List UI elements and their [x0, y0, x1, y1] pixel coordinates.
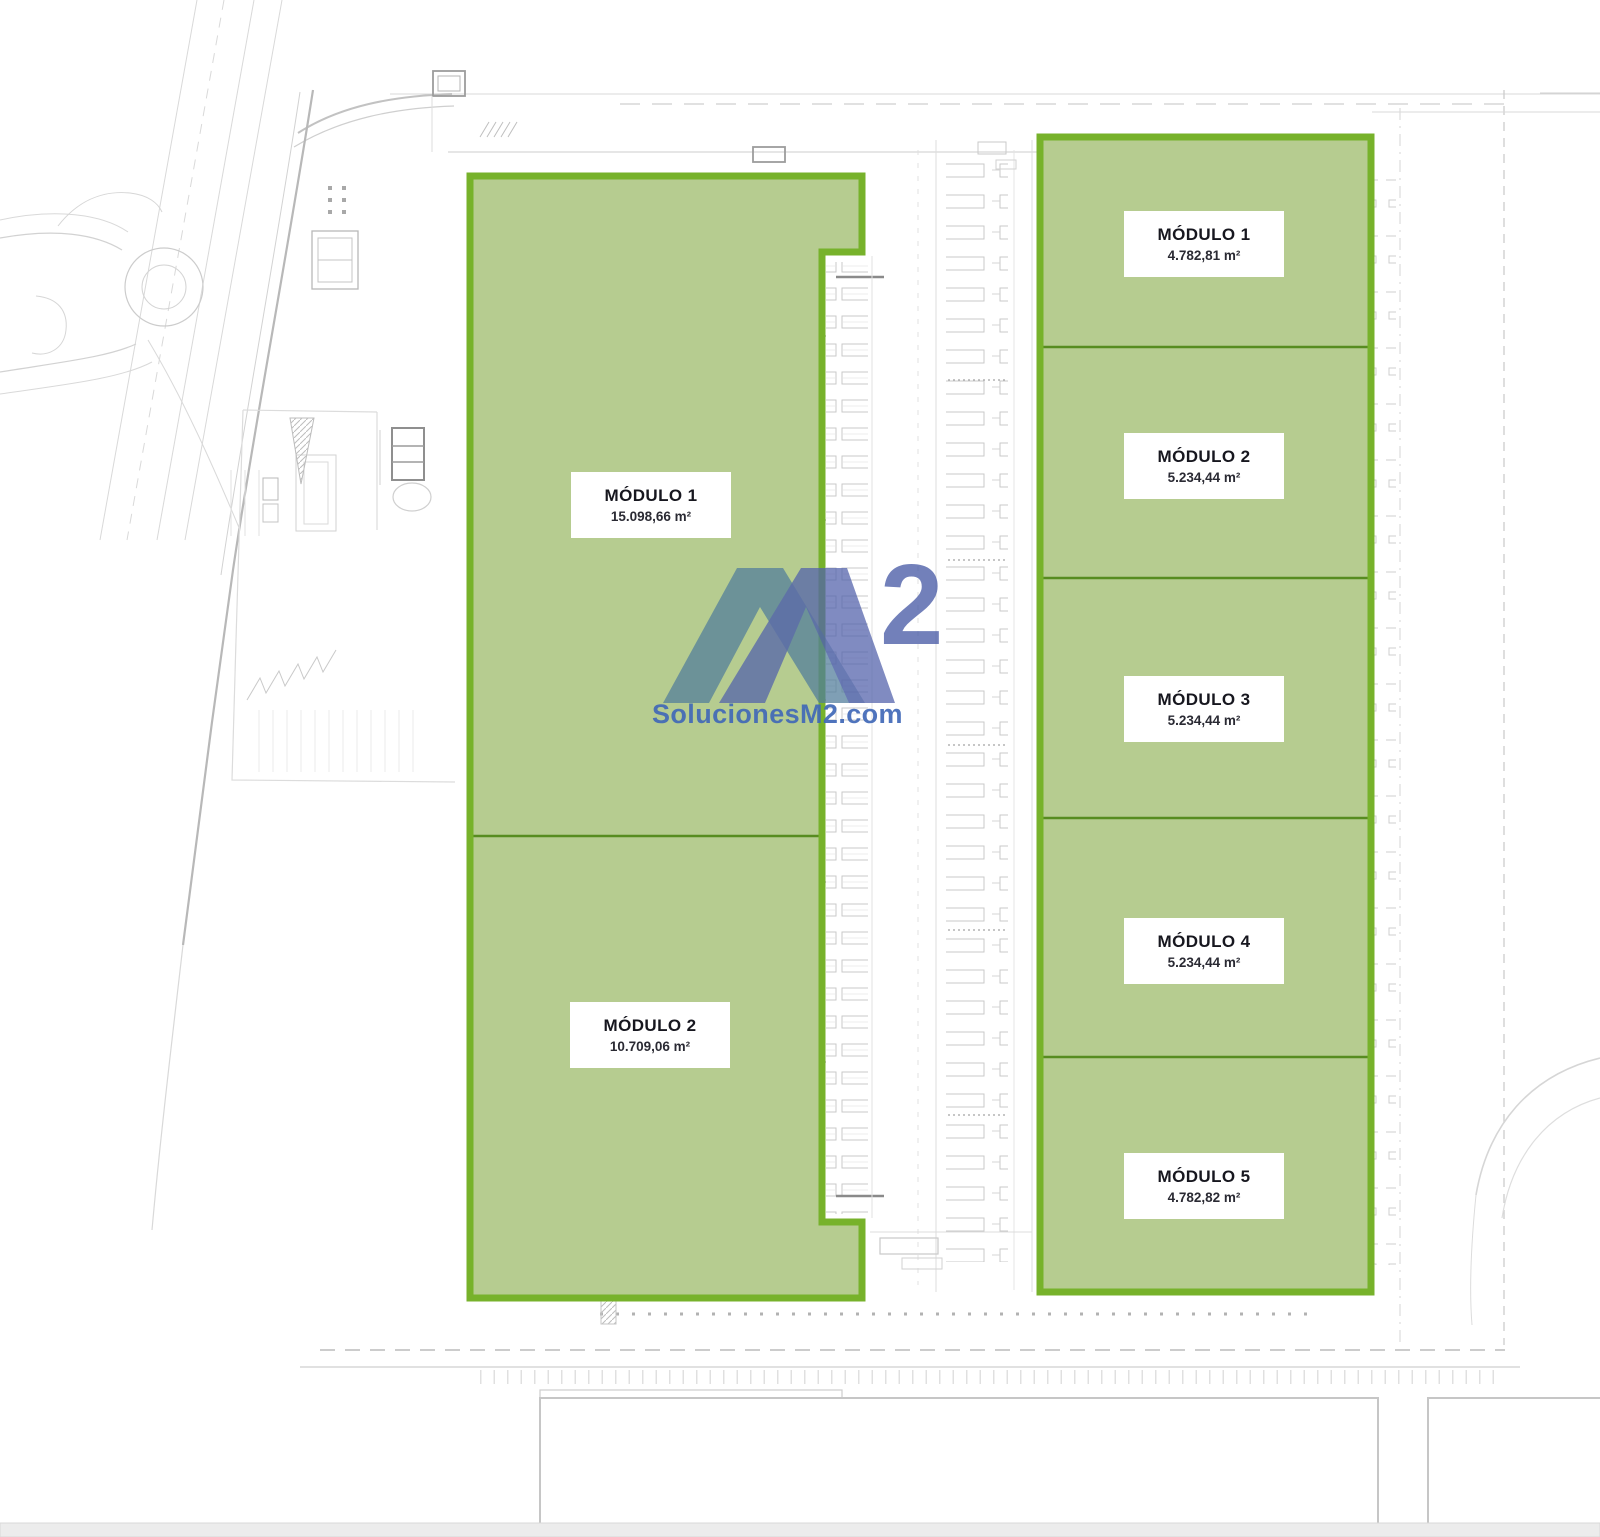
site-plan-drawing: 2	[0, 0, 1600, 1537]
site-plan: 2 MÓDULO 1 15.098,66 m² MÓDULO 2 10.709,…	[0, 0, 1600, 1537]
access-roads	[0, 193, 240, 530]
right-module-2-label: MÓDULO 2 5.234,44 m²	[1124, 433, 1284, 499]
module-area: 5.234,44 m²	[1168, 955, 1241, 970]
left-module-2-label: MÓDULO 2 10.709,06 m²	[570, 1002, 730, 1068]
right-module-4-label: MÓDULO 4 5.234,44 m²	[1124, 918, 1284, 984]
right-site-features	[1372, 90, 1600, 1345]
module-name: MÓDULO 2	[1158, 447, 1251, 467]
left-site-features	[228, 186, 455, 782]
module-name: MÓDULO 3	[1158, 690, 1251, 710]
roundabout	[125, 248, 203, 326]
module-area: 5.234,44 m²	[1168, 713, 1241, 728]
module-name: MÓDULO 5	[1158, 1167, 1251, 1187]
right-module-1-label: MÓDULO 1 4.782,81 m²	[1124, 211, 1284, 277]
module-area: 15.098,66 m²	[611, 509, 691, 524]
watermark-site-url: SolucionesM2.com	[652, 699, 903, 730]
module-area: 10.709,06 m²	[610, 1039, 690, 1054]
module-area: 4.782,82 m²	[1168, 1190, 1241, 1205]
left-building	[470, 176, 862, 1298]
bottom-street	[0, 1298, 1600, 1537]
m2-logo-exponent: 2	[880, 542, 943, 669]
module-area: 5.234,44 m²	[1168, 470, 1241, 485]
module-area: 4.782,81 m²	[1168, 248, 1241, 263]
left-module-1-label: MÓDULO 1 15.098,66 m²	[571, 472, 731, 538]
module-name: MÓDULO 1	[605, 486, 698, 506]
module-name: MÓDULO 2	[604, 1016, 697, 1036]
module-name: MÓDULO 1	[1158, 225, 1251, 245]
right-module-5-label: MÓDULO 5 4.782,82 m²	[1124, 1153, 1284, 1219]
right-module-3-label: MÓDULO 3 5.234,44 m²	[1124, 676, 1284, 742]
module-name: MÓDULO 4	[1158, 932, 1251, 952]
